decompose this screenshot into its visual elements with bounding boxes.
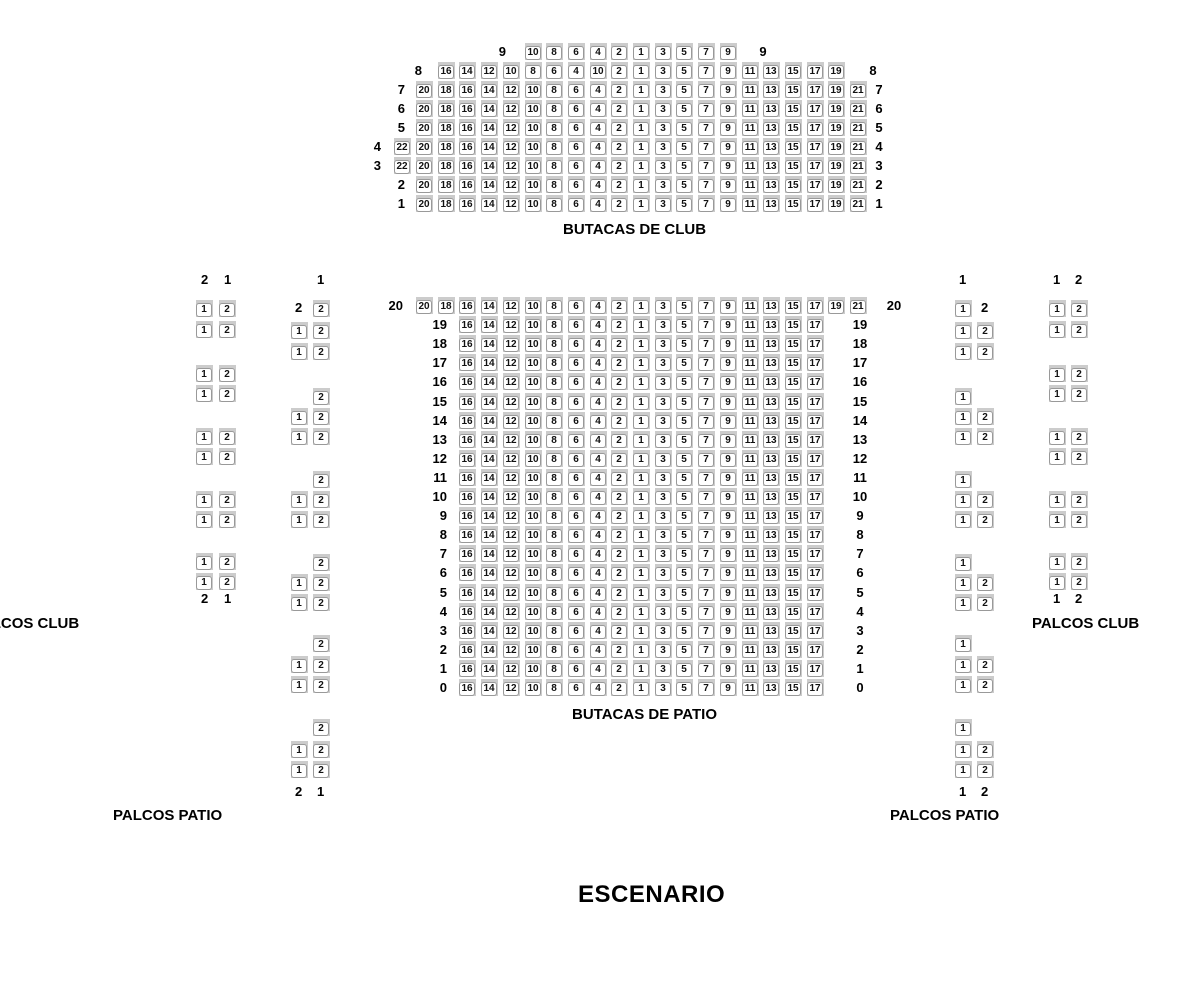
seat[interactable]: 9	[720, 176, 737, 193]
seat[interactable]: 1	[196, 385, 213, 402]
seat[interactable]: 10	[525, 431, 542, 448]
seat[interactable]: 4	[568, 62, 585, 79]
seat[interactable]: 2	[611, 507, 628, 524]
seat[interactable]: 8	[546, 297, 563, 314]
seat[interactable]: 5	[676, 488, 693, 505]
seat[interactable]: 9	[720, 316, 737, 333]
seat[interactable]: 12	[503, 507, 520, 524]
seat[interactable]: 6	[568, 564, 585, 581]
seat[interactable]: 1	[1049, 491, 1066, 508]
seat[interactable]: 11	[742, 431, 759, 448]
seat[interactable]: 2	[313, 741, 330, 758]
seat[interactable]: 4	[590, 584, 607, 601]
seat[interactable]: 14	[481, 100, 498, 117]
seat[interactable]: 3	[655, 316, 672, 333]
seat[interactable]: 12	[503, 393, 520, 410]
seat[interactable]: 10	[525, 564, 542, 581]
seat[interactable]: 9	[720, 603, 737, 620]
seat[interactable]: 1	[291, 322, 308, 339]
seat[interactable]: 13	[763, 469, 780, 486]
seat[interactable]: 2	[611, 431, 628, 448]
seat[interactable]: 2	[313, 471, 330, 488]
seat[interactable]: 2	[977, 343, 994, 360]
seat[interactable]: 2	[977, 408, 994, 425]
seat[interactable]: 17	[807, 176, 824, 193]
seat[interactable]: 13	[763, 373, 780, 390]
seat[interactable]: 4	[590, 469, 607, 486]
seat[interactable]: 15	[785, 507, 802, 524]
seat[interactable]: 10	[525, 412, 542, 429]
seat[interactable]: 5	[676, 195, 693, 212]
seat[interactable]: 5	[676, 335, 693, 352]
seat[interactable]: 4	[590, 450, 607, 467]
seat[interactable]: 17	[807, 507, 824, 524]
seat[interactable]: 1	[955, 574, 972, 591]
seat[interactable]: 7	[698, 354, 715, 371]
seat[interactable]: 22	[394, 138, 411, 155]
seat[interactable]: 22	[394, 157, 411, 174]
seat[interactable]: 10	[525, 297, 542, 314]
seat[interactable]: 14	[481, 545, 498, 562]
seat[interactable]: 2	[219, 428, 236, 445]
seat[interactable]: 7	[698, 545, 715, 562]
seat[interactable]: 9	[720, 335, 737, 352]
seat[interactable]: 9	[720, 622, 737, 639]
seat[interactable]: 21	[850, 157, 867, 174]
seat[interactable]: 8	[546, 603, 563, 620]
seat[interactable]: 11	[742, 316, 759, 333]
seat[interactable]: 18	[438, 119, 455, 136]
seat[interactable]: 8	[546, 43, 563, 60]
seat[interactable]: 1	[1049, 300, 1066, 317]
seat[interactable]: 2	[611, 450, 628, 467]
seat[interactable]: 7	[698, 584, 715, 601]
seat[interactable]: 7	[698, 157, 715, 174]
seat[interactable]: 16	[459, 119, 476, 136]
seat[interactable]: 4	[590, 393, 607, 410]
seat[interactable]: 9	[720, 488, 737, 505]
seat[interactable]: 16	[459, 335, 476, 352]
seat[interactable]: 15	[785, 622, 802, 639]
seat[interactable]: 9	[720, 373, 737, 390]
seat[interactable]: 15	[785, 373, 802, 390]
seat[interactable]: 2	[219, 491, 236, 508]
seat[interactable]: 10	[525, 660, 542, 677]
seat[interactable]: 12	[503, 354, 520, 371]
seat[interactable]: 2	[1071, 553, 1088, 570]
seat[interactable]: 6	[568, 100, 585, 117]
seat[interactable]: 10	[525, 393, 542, 410]
seat[interactable]: 10	[590, 62, 607, 79]
seat[interactable]: 1	[196, 321, 213, 338]
seat[interactable]: 12	[503, 660, 520, 677]
seat[interactable]: 14	[481, 603, 498, 620]
seat[interactable]: 8	[546, 545, 563, 562]
seat[interactable]: 4	[590, 545, 607, 562]
seat[interactable]: 6	[568, 412, 585, 429]
seat[interactable]: 8	[546, 316, 563, 333]
seat[interactable]: 6	[568, 545, 585, 562]
seat[interactable]: 8	[546, 176, 563, 193]
seat[interactable]: 3	[655, 297, 672, 314]
seat[interactable]: 19	[828, 195, 845, 212]
seat[interactable]: 5	[676, 584, 693, 601]
seat[interactable]: 13	[763, 660, 780, 677]
seat[interactable]: 2	[977, 491, 994, 508]
seat[interactable]: 14	[481, 373, 498, 390]
seat[interactable]: 1	[955, 428, 972, 445]
seat[interactable]: 11	[742, 526, 759, 543]
seat[interactable]: 5	[676, 431, 693, 448]
seat[interactable]: 9	[720, 450, 737, 467]
seat[interactable]: 13	[763, 412, 780, 429]
seat[interactable]: 17	[807, 526, 824, 543]
seat[interactable]: 10	[525, 100, 542, 117]
seat[interactable]: 8	[546, 119, 563, 136]
seat[interactable]: 2	[611, 176, 628, 193]
seat[interactable]: 19	[828, 176, 845, 193]
seat[interactable]: 11	[742, 622, 759, 639]
seat[interactable]: 16	[459, 584, 476, 601]
seat[interactable]: 12	[503, 545, 520, 562]
seat[interactable]: 9	[720, 157, 737, 174]
seat[interactable]: 14	[459, 62, 476, 79]
seat[interactable]: 1	[1049, 365, 1066, 382]
seat[interactable]: 7	[698, 119, 715, 136]
seat[interactable]: 1	[291, 511, 308, 528]
seat[interactable]: 13	[763, 603, 780, 620]
seat[interactable]: 13	[763, 335, 780, 352]
seat[interactable]: 5	[676, 100, 693, 117]
seat[interactable]: 4	[590, 564, 607, 581]
seat[interactable]: 2	[313, 511, 330, 528]
seat[interactable]: 12	[503, 564, 520, 581]
seat[interactable]: 11	[742, 100, 759, 117]
seat[interactable]: 6	[568, 138, 585, 155]
seat[interactable]: 14	[481, 335, 498, 352]
seat[interactable]: 1	[633, 81, 650, 98]
seat[interactable]: 6	[568, 660, 585, 677]
seat[interactable]: 20	[416, 297, 433, 314]
seat[interactable]: 14	[481, 119, 498, 136]
seat[interactable]: 5	[676, 641, 693, 658]
seat[interactable]: 1	[196, 448, 213, 465]
seat[interactable]: 1	[291, 343, 308, 360]
seat[interactable]: 12	[503, 316, 520, 333]
seat[interactable]: 2	[611, 43, 628, 60]
seat[interactable]: 1	[633, 660, 650, 677]
seat[interactable]: 7	[698, 660, 715, 677]
seat[interactable]: 11	[742, 660, 759, 677]
seat[interactable]: 6	[568, 679, 585, 696]
seat[interactable]: 13	[763, 431, 780, 448]
seat[interactable]: 3	[655, 641, 672, 658]
seat[interactable]: 14	[481, 469, 498, 486]
seat[interactable]: 19	[828, 100, 845, 117]
seat[interactable]: 11	[742, 393, 759, 410]
seat[interactable]: 16	[459, 431, 476, 448]
seat[interactable]: 1	[955, 491, 972, 508]
seat[interactable]: 6	[568, 622, 585, 639]
seat[interactable]: 6	[568, 176, 585, 193]
seat[interactable]: 15	[785, 335, 802, 352]
seat[interactable]: 3	[655, 195, 672, 212]
seat[interactable]: 2	[611, 373, 628, 390]
seat[interactable]: 4	[590, 373, 607, 390]
seat[interactable]: 1	[1049, 385, 1066, 402]
seat[interactable]: 21	[850, 138, 867, 155]
seat[interactable]: 8	[546, 100, 563, 117]
seat[interactable]: 13	[763, 100, 780, 117]
seat[interactable]: 13	[763, 545, 780, 562]
seat[interactable]: 1	[633, 119, 650, 136]
seat[interactable]: 5	[676, 157, 693, 174]
seat[interactable]: 5	[676, 603, 693, 620]
seat[interactable]: 7	[698, 641, 715, 658]
seat[interactable]: 6	[568, 488, 585, 505]
seat[interactable]: 12	[503, 81, 520, 98]
seat[interactable]: 3	[655, 660, 672, 677]
seat[interactable]: 11	[742, 488, 759, 505]
seat[interactable]: 2	[611, 100, 628, 117]
seat[interactable]: 15	[785, 195, 802, 212]
seat[interactable]: 15	[785, 564, 802, 581]
seat[interactable]: 2	[313, 554, 330, 571]
seat[interactable]: 2	[1071, 428, 1088, 445]
seat[interactable]: 17	[807, 138, 824, 155]
seat[interactable]: 13	[763, 62, 780, 79]
seat[interactable]: 3	[655, 119, 672, 136]
seat[interactable]: 2	[611, 584, 628, 601]
seat[interactable]: 13	[763, 507, 780, 524]
seat[interactable]: 4	[590, 354, 607, 371]
seat[interactable]: 16	[459, 526, 476, 543]
seat[interactable]: 13	[763, 450, 780, 467]
seat[interactable]: 2	[611, 393, 628, 410]
seat[interactable]: 2	[611, 412, 628, 429]
seat[interactable]: 14	[481, 195, 498, 212]
seat[interactable]: 16	[438, 62, 455, 79]
seat[interactable]: 19	[828, 81, 845, 98]
seat[interactable]: 12	[503, 195, 520, 212]
seat[interactable]: 11	[742, 603, 759, 620]
seat[interactable]: 12	[503, 157, 520, 174]
seat[interactable]: 5	[676, 316, 693, 333]
seat[interactable]: 2	[611, 526, 628, 543]
seat[interactable]: 18	[438, 138, 455, 155]
seat[interactable]: 16	[459, 488, 476, 505]
seat[interactable]: 4	[590, 157, 607, 174]
seat[interactable]: 9	[720, 679, 737, 696]
seat[interactable]: 13	[763, 354, 780, 371]
seat[interactable]: 1	[196, 553, 213, 570]
seat[interactable]: 7	[698, 526, 715, 543]
seat[interactable]: 10	[525, 679, 542, 696]
seat[interactable]: 12	[481, 62, 498, 79]
seat[interactable]: 1	[633, 335, 650, 352]
seat[interactable]: 2	[1071, 448, 1088, 465]
seat[interactable]: 1	[955, 635, 972, 652]
seat[interactable]: 1	[291, 491, 308, 508]
seat[interactable]: 1	[633, 469, 650, 486]
seat[interactable]: 2	[611, 679, 628, 696]
seat[interactable]: 2	[611, 354, 628, 371]
seat[interactable]: 2	[977, 428, 994, 445]
seat[interactable]: 17	[807, 603, 824, 620]
seat[interactable]: 1	[291, 741, 308, 758]
seat[interactable]: 12	[503, 641, 520, 658]
seat[interactable]: 18	[438, 81, 455, 98]
seat[interactable]: 15	[785, 603, 802, 620]
seat[interactable]: 10	[525, 603, 542, 620]
seat[interactable]: 2	[313, 491, 330, 508]
seat[interactable]: 13	[763, 526, 780, 543]
seat[interactable]: 14	[481, 660, 498, 677]
seat[interactable]: 3	[655, 564, 672, 581]
seat[interactable]: 10	[503, 62, 520, 79]
seat[interactable]: 13	[763, 157, 780, 174]
seat[interactable]: 1	[633, 195, 650, 212]
seat[interactable]: 20	[416, 119, 433, 136]
seat[interactable]: 5	[676, 679, 693, 696]
seat[interactable]: 10	[525, 584, 542, 601]
seat[interactable]: 12	[503, 373, 520, 390]
seat[interactable]: 3	[655, 335, 672, 352]
seat[interactable]: 1	[1049, 321, 1066, 338]
seat[interactable]: 14	[481, 526, 498, 543]
seat[interactable]: 2	[611, 564, 628, 581]
seat[interactable]: 1	[955, 594, 972, 611]
seat[interactable]: 3	[655, 373, 672, 390]
seat[interactable]: 15	[785, 81, 802, 98]
seat[interactable]: 2	[313, 574, 330, 591]
seat[interactable]: 17	[807, 354, 824, 371]
seat[interactable]: 2	[1071, 491, 1088, 508]
seat[interactable]: 11	[742, 450, 759, 467]
seat[interactable]: 1	[1049, 511, 1066, 528]
seat[interactable]: 2	[219, 300, 236, 317]
seat[interactable]: 6	[568, 507, 585, 524]
seat[interactable]: 1	[955, 719, 972, 736]
seat[interactable]: 17	[807, 584, 824, 601]
seat[interactable]: 15	[785, 297, 802, 314]
seat[interactable]: 12	[503, 119, 520, 136]
seat[interactable]: 19	[828, 119, 845, 136]
seat[interactable]: 16	[459, 469, 476, 486]
seat[interactable]: 1	[291, 676, 308, 693]
seat[interactable]: 10	[525, 195, 542, 212]
seat[interactable]: 13	[763, 584, 780, 601]
seat[interactable]: 21	[850, 100, 867, 117]
seat[interactable]: 4	[590, 431, 607, 448]
seat[interactable]: 9	[720, 584, 737, 601]
seat[interactable]: 11	[742, 195, 759, 212]
seat[interactable]: 15	[785, 431, 802, 448]
seat[interactable]: 4	[590, 488, 607, 505]
seat[interactable]: 4	[590, 316, 607, 333]
seat[interactable]: 7	[698, 393, 715, 410]
seat[interactable]: 4	[590, 507, 607, 524]
seat[interactable]: 2	[611, 81, 628, 98]
seat[interactable]: 1	[955, 300, 972, 317]
seat[interactable]: 12	[503, 450, 520, 467]
seat[interactable]: 15	[785, 412, 802, 429]
seat[interactable]: 19	[828, 157, 845, 174]
seat[interactable]: 2	[611, 660, 628, 677]
seat[interactable]: 19	[828, 297, 845, 314]
seat[interactable]: 17	[807, 622, 824, 639]
seat[interactable]: 9	[720, 660, 737, 677]
seat[interactable]: 4	[590, 622, 607, 639]
seat[interactable]: 1	[1049, 573, 1066, 590]
seat[interactable]: 5	[676, 176, 693, 193]
seat[interactable]: 13	[763, 622, 780, 639]
seat[interactable]: 14	[481, 412, 498, 429]
seat[interactable]: 12	[503, 100, 520, 117]
seat[interactable]: 14	[481, 564, 498, 581]
seat[interactable]: 3	[655, 507, 672, 524]
seat[interactable]: 1	[633, 412, 650, 429]
seat[interactable]: 1	[955, 408, 972, 425]
seat[interactable]: 20	[416, 81, 433, 98]
seat[interactable]: 8	[546, 431, 563, 448]
seat[interactable]: 7	[698, 603, 715, 620]
seat[interactable]: 5	[676, 297, 693, 314]
seat[interactable]: 7	[698, 100, 715, 117]
seat[interactable]: 4	[590, 100, 607, 117]
seat[interactable]: 1	[955, 554, 972, 571]
seat[interactable]: 8	[546, 138, 563, 155]
seat[interactable]: 12	[503, 526, 520, 543]
seat[interactable]: 2	[1071, 365, 1088, 382]
seat[interactable]: 7	[698, 507, 715, 524]
seat[interactable]: 12	[503, 488, 520, 505]
seat[interactable]: 6	[568, 373, 585, 390]
seat[interactable]: 2	[1071, 385, 1088, 402]
seat[interactable]: 15	[785, 157, 802, 174]
seat[interactable]: 2	[313, 343, 330, 360]
seat[interactable]: 7	[698, 469, 715, 486]
seat[interactable]: 12	[503, 622, 520, 639]
seat[interactable]: 2	[219, 511, 236, 528]
seat[interactable]: 6	[568, 584, 585, 601]
seat[interactable]: 9	[720, 62, 737, 79]
seat[interactable]: 2	[611, 119, 628, 136]
seat[interactable]: 11	[742, 176, 759, 193]
seat[interactable]: 2	[219, 573, 236, 590]
seat[interactable]: 5	[676, 469, 693, 486]
seat[interactable]: 18	[438, 100, 455, 117]
seat[interactable]: 2	[313, 322, 330, 339]
seat[interactable]: 1	[291, 656, 308, 673]
seat[interactable]: 7	[698, 622, 715, 639]
seat[interactable]: 20	[416, 157, 433, 174]
seat[interactable]: 7	[698, 81, 715, 98]
seat[interactable]: 14	[481, 138, 498, 155]
seat[interactable]: 17	[807, 564, 824, 581]
seat[interactable]: 15	[785, 469, 802, 486]
seat[interactable]: 1	[955, 388, 972, 405]
seat[interactable]: 6	[568, 469, 585, 486]
seat[interactable]: 17	[807, 335, 824, 352]
seat[interactable]: 16	[459, 412, 476, 429]
seat[interactable]: 1	[633, 138, 650, 155]
seat[interactable]: 21	[850, 195, 867, 212]
seat[interactable]: 11	[742, 81, 759, 98]
seat[interactable]: 13	[763, 564, 780, 581]
seat[interactable]: 10	[525, 354, 542, 371]
seat[interactable]: 6	[568, 157, 585, 174]
